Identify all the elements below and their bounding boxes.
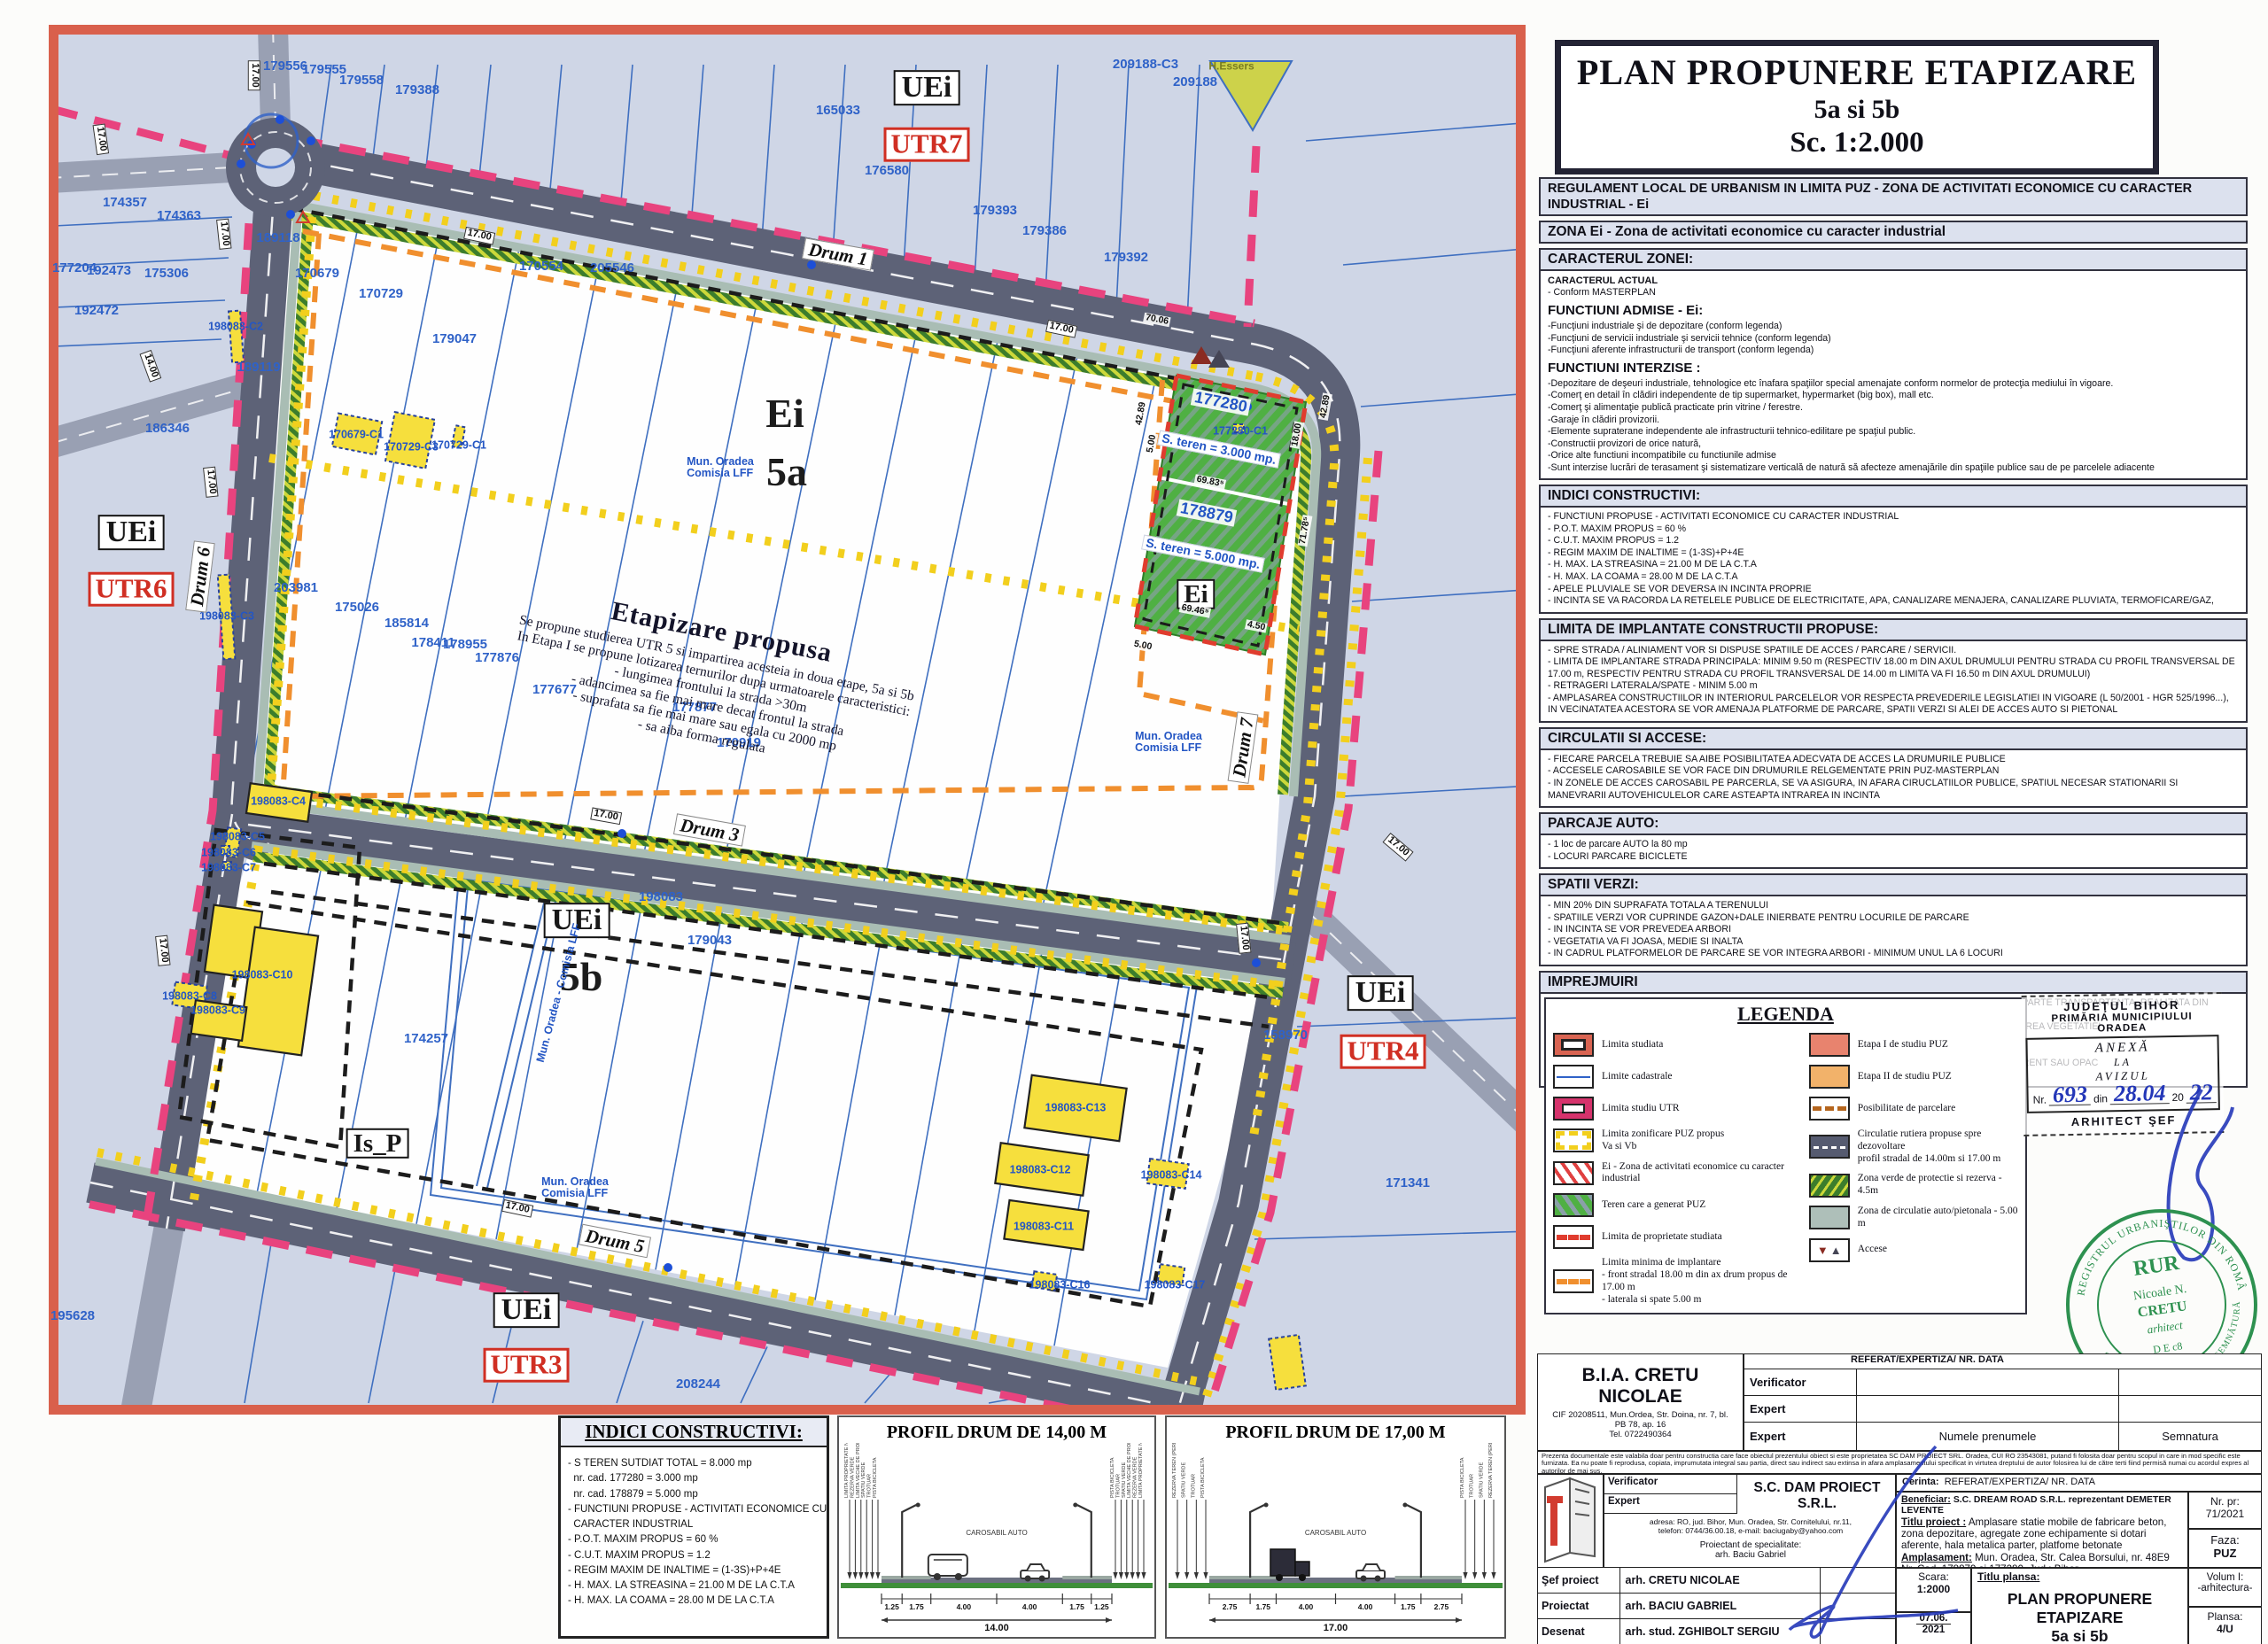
svg-text:4.00: 4.00 (1358, 1602, 1373, 1611)
profile-17m-drawing: CAROSABIL AUTOREZERVA TEREN (PERDEA VERD… (1167, 1443, 1504, 1636)
verif-cell: Expert (1744, 1422, 1857, 1452)
dam-expert-row: Expert (1604, 1494, 1737, 1514)
staff-cell: Desenat (1537, 1618, 1620, 1644)
section-header: REGULAMENT LOCAL DE URBANISM IN LIMITA P… (1539, 177, 2248, 216)
map-label-dim: 17.00 (156, 935, 171, 966)
svg-text:SPATIU VERDE: SPATIU VERDE (1122, 1462, 1127, 1498)
verif-cell: Numele prenumele (1856, 1422, 2120, 1452)
plan-title-scale: Sc. 1:2.000 (1561, 127, 2153, 159)
annex-din-label: din (2093, 1092, 2108, 1105)
legend-item: Posibilitate de parcelare (1809, 1097, 2018, 1121)
map-label-p: 174257 (404, 1032, 448, 1046)
staff-cell: Proiectat (1537, 1593, 1620, 1620)
svg-text:CAROSABIL AUTO: CAROSABIL AUTO (1305, 1529, 1366, 1537)
section-line: -Comerţ şi alimentaţie publică practicat… (1548, 402, 2239, 415)
section-line: - IN INCINTA SE VOR PREVEDEA ARBORI (1548, 924, 2239, 936)
svg-text:14.00: 14.00 (984, 1623, 1009, 1633)
legend-item: Limita minima de implantare - front stra… (1553, 1257, 1809, 1306)
section-line: - P.O.T. MAXIM PROPUS = 60 % (1548, 523, 2239, 536)
legend-title: LEGENDA (1553, 1003, 2018, 1026)
annex-year-prefix: 20 (2171, 1091, 2184, 1104)
svg-text:4.00: 4.00 (1299, 1602, 1314, 1611)
map-label-dims: 42.89 (1134, 399, 1148, 428)
map-label-p: 165033 (816, 104, 860, 118)
profile-17m-box: PROFIL DRUM DE 17,00 M CAROSABIL AUTOREZ… (1165, 1415, 1506, 1639)
section-line: - RETRAGERI LATERALA/SPATE - MINIM 5.00 … (1548, 680, 2239, 693)
section-6: PARCAJE AUTO:- 1 loc de parcare AUTO la … (1539, 812, 2248, 869)
svg-text:1.75: 1.75 (909, 1602, 924, 1611)
section-body: - MIN 20% DIN SUPRAFATA TOTALA A TERENUL… (1539, 896, 2248, 966)
legend-label: Circulatie rutiera propuse spre dezovolt… (1858, 1128, 2018, 1165)
legend-item: Circulatie rutiera propuse spre dezovolt… (1809, 1128, 2018, 1165)
svg-text:TROTUAR: TROTUAR (1191, 1474, 1196, 1498)
sw-parc-swatch (1809, 1097, 1850, 1121)
map-label-b: 198083-C10 (232, 969, 293, 981)
verif-cell: Semnatura (2118, 1422, 2262, 1452)
section-5: CIRCULATII SI ACCESE:- FIECARE PARCELA T… (1539, 727, 2248, 808)
section-line: FUNCTIUNI ADMISE - Ei: (1548, 302, 2239, 319)
map-label-dims: 69.83⁵ (1194, 474, 1227, 490)
svg-text:TROTUAR: TROTUAR (1115, 1474, 1121, 1498)
map-label-p: 179392 (1104, 251, 1148, 265)
svg-text:REZERVA TEREN (PERDEA VERDE): REZERVA TEREN (PERDEA VERDE) (1488, 1443, 1494, 1498)
sw-etapa1-swatch (1809, 1033, 1850, 1057)
legend-label: Zona verde de protectie si rezerva - 4.5… (1858, 1173, 2018, 1198)
section-3: INDICI CONSTRUCTIVI:- FUNCTIUNI PROPUSE … (1539, 485, 2248, 613)
section-line: -Garaje în clădiri provizorii. (1548, 415, 2239, 427)
legend-label: Limite cadastrale (1602, 1071, 1673, 1083)
annex-city: PRIMĂRIA MUNICIPIULUI ORADEA (2025, 1011, 2218, 1035)
map-label-dim: 17.00 (217, 219, 232, 250)
section-body: - FUNCTIUNI PROPUSE - ACTIVITATI ECONOMI… (1539, 508, 2248, 613)
verif-row: Expert (1744, 1396, 2262, 1423)
verif-cell (1856, 1395, 2120, 1423)
map-label-dim: 17.00 (1045, 320, 1077, 337)
staff-cell: arh. CRETU NICOLAE (1619, 1567, 1821, 1594)
map-label-b: 198083-C7 (201, 862, 256, 873)
regulation-sections: REGULAMENT LOCAL DE URBANISM IN LIMITA P… (1539, 177, 2248, 1092)
section-body: - SPRE STRADA / ALINIAMENT VOR SI DISPUS… (1539, 641, 2248, 723)
indici-box-lines: - S TEREN SUTDIAT TOTAL = 8.000 mp nr. c… (561, 1447, 827, 1618)
section-header: CARACTERUL ZONEI: (1539, 248, 2248, 271)
map-label-zone: UEi (1348, 975, 1414, 1011)
map-label-p: 179386 (1022, 224, 1067, 238)
svg-text:TROTUAR: TROTUAR (867, 1474, 873, 1498)
svg-text:1.75: 1.75 (1255, 1602, 1270, 1611)
legend-item: Etapa II de studiu PUZ (1809, 1065, 2018, 1089)
legend-label: Posibilitate de parcelare (1858, 1103, 1955, 1115)
legend-label: Limita studiu UTR (1602, 1103, 1680, 1115)
map-label-p: 192472 (74, 304, 119, 318)
legend-item: Limita studiu UTR (1553, 1097, 1809, 1121)
map-label-p: 170729 (359, 287, 403, 301)
legend-item: Etapa I de studiu PUZ (1809, 1033, 2018, 1057)
map-label-p: 209188 (1173, 75, 1217, 89)
staff-row: Şef proiectarh. CRETU NICOLAE (1537, 1568, 1896, 1594)
section-header: LIMITA DE IMPLANTATE CONSTRUCTII PROPUSE… (1539, 618, 2248, 641)
staff-cell: Şef proiect (1537, 1567, 1620, 1594)
svg-text:17.00: 17.00 (1324, 1623, 1348, 1633)
section-line: - H. MAX. LA STREASINA = 21.00 M DE LA C… (1548, 559, 2239, 571)
map-label-b: 198083-C9 (190, 1004, 245, 1016)
map-label-dims: 5.00 (1145, 432, 1158, 455)
svg-text:REZERVA VERDE: REZERVA VERDE (1133, 1456, 1138, 1498)
svg-text:CAROSABIL AUTO: CAROSABIL AUTO (966, 1529, 1027, 1537)
svg-text:1.25: 1.25 (1094, 1602, 1109, 1611)
section-line: - ACCESELE CAROSABILE SE VOR FACE DIN DR… (1548, 765, 2239, 778)
section-line: -Depozitare de deşeuri industriale, tehn… (1548, 378, 2239, 391)
legend-item: Limita zonificare PUZ propus Va si Vb (1553, 1128, 1809, 1153)
plan-sheet: { "plan_title":{"t1":"PLAN PROPUNERE ETA… (0, 0, 2268, 1644)
map-label-b: 198083-C11 (1014, 1221, 1074, 1232)
scara-cell: Scara:1:2000 (1896, 1568, 1971, 1612)
verif-cell (1856, 1369, 2120, 1397)
map-label-p: 179556 (263, 59, 307, 74)
staff-cell: arh. BACIU GABRIEL (1619, 1593, 1821, 1620)
date-cell: 07.06. 2021 (1896, 1612, 1971, 1644)
map-label-b: 198083-C17 (1145, 1279, 1206, 1291)
map-label-p: 176580 (865, 164, 909, 178)
map-label-b: 170729-C3 (384, 441, 439, 453)
profile-14m-box: PROFIL DRUM DE 14,00 M CAROSABIL AUTOLIM… (837, 1415, 1156, 1639)
svg-text:REZERVA TEREN (PERDEA VERDE): REZERVA TEREN (PERDEA VERDE) (1172, 1443, 1177, 1498)
svg-text:SPATIU VERDE: SPATIU VERDE (1182, 1462, 1187, 1498)
legend-label: Zona de circulatie auto/pietonala - 5.00… (1858, 1206, 2018, 1230)
map-label-dim: 17.00 (501, 1199, 533, 1217)
legend-label: Ei - Zona de activitati economice cu car… (1602, 1161, 1809, 1186)
svg-text:SPATIU VERDE: SPATIU VERDE (861, 1462, 866, 1498)
indici-constructivi-box: INDICI CONSTRUCTIVI: - S TEREN SUTDIAT T… (558, 1415, 829, 1639)
dam-proiectant: Proiectant de specialitate:arh. Baciu Ga… (1613, 1540, 1888, 1560)
map-label-pb: 177280 (1191, 388, 1251, 415)
section-header: ZONA Ei - Zona de activitati economice c… (1539, 221, 2248, 244)
map-label-dims: 5.00 (1131, 639, 1154, 652)
section-line: - VEGETATIA VA FI JOASA, MEDIE SI INALTA (1548, 936, 2239, 949)
annex-stamp: JUDEŢUL BIHOR PRIMĂRIA MUNICIPIULUI ORAD… (2022, 992, 2225, 1136)
annex-footer: ARHITECT ŞEF (2027, 1113, 2220, 1129)
sw-puz-swatch (1553, 1128, 1594, 1152)
section-header: PARCAJE AUTO: (1539, 812, 2248, 835)
faza-cell: Faza:PUZ (2188, 1529, 2262, 1568)
svg-text:PISTA BICICLETA: PISTA BICICLETA (1110, 1457, 1115, 1498)
section-header: IMPREJMUIRI (1539, 971, 2248, 994)
map-label-p: 186346 (145, 422, 190, 436)
sw-ei-swatch (1553, 1161, 1594, 1185)
map-label-olive: H.Essers (1208, 61, 1254, 73)
map-label-st: S. teren = 5.000 mp. (1141, 535, 1265, 573)
section-body: CARACTERUL ACTUAL - Conform MASTERPLANFU… (1539, 271, 2248, 480)
section-line: - C.U.T. MAXIM PROPUS = 1.2 (1548, 535, 2239, 547)
map-label-dims: 18.00 (1290, 421, 1304, 449)
nr-pr-cell: Nr. pr:71/2021 (2188, 1492, 2262, 1529)
map-label-big: Ei (765, 392, 804, 435)
sw-utr-swatch (1553, 1097, 1594, 1121)
annex-inner-box: ANEXĂ LA AVIZUL Nr. 693 din 28.04 20 22 (2025, 1035, 2219, 1113)
section-line: -Orice alte functiuni incompatibile cu f… (1548, 450, 2239, 462)
volum-cell: Volum I:-arhitectura- (2188, 1568, 2262, 1607)
section-header: INDICI CONSTRUCTIVI: (1539, 485, 2248, 508)
map-label-b: 198083-C3 (199, 610, 254, 622)
section-body: - FIECARE PARCELA TREBUIE SA AIBE POSIBI… (1539, 750, 2248, 808)
staff-row: Desenatarh. stud. ZGHIBOLT SERGIU (1537, 1619, 1896, 1644)
project-cell: Beneficiar: S.C. DREAM ROAD S.R.L. repre… (1896, 1492, 2188, 1568)
legend-label: Limita de proprietate studiata (1602, 1231, 1722, 1244)
legend-label: Etapa II de studiu PUZ (1858, 1071, 1952, 1083)
svg-text:SPATIU VERDE: SPATIU VERDE (1479, 1462, 1484, 1498)
bia-addr1: CIF 20208511, Mun.Ordea, Str. Doina, nr.… (1538, 1410, 1743, 1420)
verif-cell: Verificator (1744, 1369, 1857, 1397)
section-line: - REGIM MAXIM DE INALTIME = (1-3S)+P+4E (1548, 547, 2239, 560)
staff-rows: Şef proiectarh. CRETU NICOLAEProiectatar… (1537, 1568, 1896, 1644)
section-line: - 1 loc de parcare AUTO la 80 mp (1548, 839, 2239, 851)
svg-text:REZERVA VERDE: REZERVA VERDE (850, 1456, 855, 1498)
section-line: -Comerţ en detail în clădiri independent… (1548, 390, 2239, 402)
svg-text:PISTA BICICLETA: PISTA BICICLETA (1200, 1457, 1206, 1498)
legend-label: Limita minima de implantare - front stra… (1602, 1257, 1809, 1306)
legend-item: Limita de proprietate studiata (1553, 1225, 1809, 1249)
map-label-p: 192473 (87, 264, 131, 278)
map-label-b: 198083-C5 (210, 831, 265, 842)
sw-cadastrale-swatch (1553, 1065, 1594, 1089)
map-label-b: 198083-C4 (251, 795, 306, 807)
section-line: - INCINTA SE VA RACORDA LA RETELELE PUBL… (1548, 595, 2239, 608)
annex-date-value: 28.04 (2110, 1084, 2170, 1105)
legend-label: Accese (1858, 1244, 1887, 1256)
map-label-p: 170679 (295, 267, 339, 281)
legend-column-right: Etapa I de studiu PUZEtapa II de studiu … (1809, 1033, 2018, 1306)
section-line: -Funcţiuni de servicii industriale şi se… (1548, 333, 2239, 345)
svg-text:2.75: 2.75 (1223, 1602, 1238, 1611)
map-label-drum: Drum 5 (579, 1224, 651, 1259)
section-line: - LIMITA DE IMPLANTARE STRADA PRINCIPALA… (1548, 656, 2239, 680)
staff-cell (1820, 1567, 1896, 1594)
plan-title-line1: PLAN PROPUNERE ETAPIZARE (1561, 51, 2153, 93)
map-label-dim: 17.00 (248, 60, 260, 90)
copyright-disclaimer: Prezenta documentale este valabila doar … (1537, 1451, 2262, 1474)
map-label-p: 179043 (687, 934, 732, 948)
map-label-dim: 17.00 (590, 807, 621, 824)
map-label-p: 175026 (335, 601, 379, 615)
map-label-dim: 17.00 (1237, 923, 1252, 954)
legend-label: Limita studiata (1602, 1039, 1663, 1051)
profile-14m-title: PROFIL DRUM DE 14,00 M (839, 1417, 1154, 1443)
regulations-panel: PLAN PROPUNERE ETAPIZARE 5a si 5b Sc. 1:… (1537, 0, 2268, 1644)
map-label-dims: 71.78⁵ (1298, 515, 1313, 547)
map-label-p: 171341 (1386, 1176, 1430, 1190)
titlu-plansa-cell: Titlu plansa: PLAN PROPUNERE ETAPIZARE 5… (1971, 1568, 2188, 1644)
map-label-dim: 17.00 (463, 227, 495, 244)
annex-nr-label: Nr. (2033, 1093, 2047, 1105)
bia-phone: Tel. 0722490364 (1538, 1430, 1743, 1439)
section-line: - LOCURI PARCARE BICICLETE (1548, 851, 2239, 864)
plan-title-box: PLAN PROPUNERE ETAPIZARE 5a si 5b Sc. 1:… (1555, 40, 2159, 174)
bia-addr2: PB 78, ap. 16 (1538, 1420, 1743, 1430)
map-label-dim: 17.00 (204, 467, 219, 498)
map-label-zone: UEi (98, 515, 165, 550)
map-label-utr: UTR3 (484, 1348, 570, 1383)
sw-impl-swatch (1553, 1269, 1594, 1293)
map-label-big: 5a (766, 451, 807, 493)
svg-text:1.25: 1.25 (884, 1602, 899, 1611)
map-label-p: 208244 (676, 1377, 720, 1392)
map-label-note: Mun. Oradea Comisia LFF (541, 1176, 609, 1199)
dam-logo-cell (1537, 1474, 1604, 1568)
section-line: - APELE PLUVIALE SE VOR DEVERSA IN INCIN… (1548, 584, 2239, 596)
map-label-b: 177280-C1 (1213, 425, 1268, 437)
bia-name: B.I.A. CRETU NICOLAE (1538, 1365, 1743, 1407)
map-label-p: 170554 (519, 260, 563, 274)
map-label-p: 195628 (50, 1309, 95, 1323)
sw-zc-swatch (1809, 1206, 1850, 1229)
dam-address: adresa: RO, jud. Bihor, Mun. Oradea, Str… (1613, 1517, 1888, 1535)
legend-label: Etapa I de studiu PUZ (1858, 1039, 1948, 1051)
sw-zv-swatch (1809, 1174, 1850, 1198)
section-line: - Conform MASTERPLAN (1548, 287, 2239, 299)
legend-item: Zona verde de protectie si rezerva - 4.5… (1809, 1173, 2018, 1198)
verif-row: ExpertNumele prenumeleSemnatura (1744, 1423, 2262, 1451)
cerinta-row: Cerinta: REFERAT/EXPERTIZA/ NR. DATA (1896, 1474, 2262, 1492)
sw-acc-swatch (1809, 1238, 1850, 1262)
svg-text:2.75: 2.75 (1434, 1602, 1449, 1611)
map-label-b: 198083-C8 (162, 990, 217, 1002)
bia-block: B.I.A. CRETU NICOLAE CIF 20208511, Mun.O… (1537, 1353, 1744, 1451)
legend-item: Zona de circulatie auto/pietonala - 5.00… (1809, 1206, 2018, 1230)
map-label-p: 189119 (237, 361, 280, 375)
staff-cell: arh. stud. ZGHIBOLT SERGIU (1619, 1618, 1821, 1644)
map-label-b: 198083-C14 (1141, 1169, 1202, 1181)
plansa-cell: Plansa:4/U (2188, 1607, 2262, 1644)
sw-circ-swatch (1809, 1135, 1850, 1159)
section-line: -Constructii provizori de orice natură, (1548, 438, 2239, 451)
legend-label: Limita zonificare PUZ propus Va si Vb (1602, 1128, 1724, 1153)
legend-column-left: Limita studiataLimite cadastraleLimita s… (1553, 1033, 1809, 1306)
dam-verificator-row: Verificator (1604, 1475, 1737, 1494)
verif-cell (2118, 1369, 2262, 1397)
verif-row: Verificator (1744, 1369, 2262, 1396)
section-line: - FIECARE PARCELA TREBUIE SA AIBE POSIBI… (1548, 754, 2239, 766)
map-label-b: 198083-C13 (1045, 1102, 1107, 1113)
section-1: ZONA Ei - Zona de activitati economice c… (1539, 221, 2248, 244)
section-line: - IN CADRUL PLATFORMELOR DE PARCARE SE V… (1548, 948, 2239, 960)
sw-prop-swatch (1553, 1225, 1594, 1249)
legend-item: Accese (1809, 1238, 2018, 1262)
map-label-p: 175306 (144, 267, 189, 281)
legend-item: Limita studiata (1553, 1033, 1809, 1057)
map-label-b: 198083-C6 (201, 847, 256, 858)
svg-text:1.75: 1.75 (1069, 1602, 1084, 1611)
map-label-p: 158970 (1263, 1028, 1308, 1043)
map-label-dim: 17.00 (93, 123, 109, 154)
sw-teren-swatch (1553, 1193, 1594, 1217)
section-line: - FUNCTIUNI PROPUSE - ACTIVITATI ECONOMI… (1548, 511, 2239, 523)
map-label-drum: Drum 7 (1228, 711, 1259, 784)
section-line: - SPATIILE VERZI VOR CUPRINDE GAZON+DALE… (1548, 912, 2239, 925)
map-label-p: 198083 (639, 890, 683, 904)
map-label-p: 179558 (339, 74, 384, 88)
svg-text:LIMITA PROPRIETATE NOU PROPUSA: LIMITA PROPRIETATE NOU PROPUSA - IMPREJM… (1138, 1443, 1144, 1498)
map-label-dims: 70.06 (1143, 313, 1171, 328)
staff-cell (1820, 1618, 1896, 1644)
section-line: -Funcţiuni aferente infrastructurii de t… (1548, 345, 2239, 357)
map-label-p: 209188-C3 (1113, 58, 1178, 72)
map-label-dim: 17.00 (1383, 833, 1413, 861)
map-label-b: 198083-C12 (1010, 1164, 1071, 1175)
map-label-utr: UTR6 (89, 572, 175, 607)
section-line: -Sunt interzise lucrări de terasament şi… (1548, 462, 2239, 475)
indici-box-title: INDICI CONSTRUCTIVI: (561, 1418, 827, 1447)
map-label-b: 170679-C1 (329, 429, 384, 440)
map-label-b: 198083-C16 (1029, 1279, 1091, 1291)
svg-text:RUR: RUR (2132, 1252, 2181, 1281)
map-label-drum: Drum 3 (673, 813, 746, 846)
map-label-b: 170729-C1 (431, 439, 486, 451)
verif-cell (2118, 1395, 2262, 1423)
map-label-note: Mun. Oradea Comisia LFF (1135, 731, 1202, 754)
map-label-p: 174363 (157, 209, 201, 223)
dam-cell: Verificator Expert S.C. DAM PROIECT S.R.… (1604, 1474, 1896, 1568)
legend-item: Teren care a generat PUZ (1553, 1193, 1809, 1217)
section-line: -Funcţiuni industriale şi de depozitare … (1548, 321, 2239, 333)
section-line: - SPRE STRADA / ALINIAMENT VOR SI DISPUS… (1548, 645, 2239, 657)
map-label-p: 185814 (384, 616, 429, 631)
map-label-dim: 14.00 (140, 350, 161, 382)
section-line: - IN ZONELE DE ACCES CAROSABIL PE PARCER… (1548, 778, 2239, 802)
map-label-dims: 4.50 (1245, 619, 1268, 632)
plan-title-line2: 5a si 5b (1561, 95, 2153, 125)
map-label-zone: UEi (493, 1292, 560, 1328)
section-header: SPATII VERZI: (1539, 873, 2248, 896)
map-label-p: 189118 (256, 231, 299, 245)
staff-cell (1820, 1593, 1896, 1620)
annex-year-value: 22 (2186, 1083, 2217, 1103)
legend-label: Teren care a generat PUZ (1602, 1199, 1705, 1212)
section-body: - 1 loc de parcare AUTO la 80 mp- LOCURI… (1539, 835, 2248, 869)
map-label-p: 179393 (973, 204, 1017, 218)
sw-etapa2-swatch (1809, 1065, 1850, 1089)
svg-text:PISTA BICICLETA: PISTA BICICLETA (873, 1457, 878, 1498)
map-label-p: 203981 (274, 581, 318, 595)
map-label-p: 205546 (590, 261, 634, 275)
map-label-p: 179047 (432, 332, 477, 346)
profile-17m-title: PROFIL DRUM DE 17,00 M (1167, 1417, 1504, 1443)
svg-text:PISTA BICICLETA: PISTA BICICLETA (1460, 1457, 1465, 1498)
map-label-pb: 178879 (1177, 499, 1237, 526)
section-header: CIRCULATII SI ACCESE: (1539, 727, 2248, 750)
section-7: SPATII VERZI:- MIN 20% DIN SUPRAFATA TOT… (1539, 873, 2248, 966)
svg-text:LIMITA VECHE DE PROPRIETATE: LIMITA VECHE DE PROPRIETATE (856, 1443, 861, 1498)
svg-text:arhitect: arhitect (2147, 1318, 2184, 1337)
svg-text:TROTUAR: TROTUAR (1470, 1474, 1475, 1498)
legend-box: LEGENDA Limita studiataLimite cadastrale… (1544, 997, 2027, 1314)
map-label-drum: Drum 6 (185, 540, 215, 612)
legend-item: Limite cadastrale (1553, 1065, 1809, 1089)
legend-item: Ei - Zona de activitati economice cu car… (1553, 1161, 1809, 1186)
map-label-zone: UEi (894, 70, 960, 105)
section-2: CARACTERUL ZONEI:CARACTERUL ACTUAL - Con… (1539, 248, 2248, 480)
dam-company: S.C. DAM PROIECT S.R.L. (1737, 1480, 1897, 1512)
map-label-drum: Drum 1 (802, 237, 874, 270)
verif-cell: Expert (1744, 1395, 1857, 1423)
annex-nr-value: 693 (2049, 1086, 2091, 1106)
section-0: REGULAMENT LOCAL DE URBANISM IN LIMITA P… (1539, 177, 2248, 216)
section-line: CARACTERUL ACTUAL (1548, 275, 2239, 287)
svg-text:4.00: 4.00 (1022, 1602, 1037, 1611)
section-line: - H. MAX. LA COAMA = 28.00 M DE LA C.T.A (1548, 571, 2239, 584)
map-label-utr: UTR7 (884, 128, 970, 162)
section-4: LIMITA DE IMPLANTATE CONSTRUCTII PROPUSE… (1539, 618, 2248, 723)
section-line: - MIN 20% DIN SUPRAFATA TOTALA A TERENUL… (1548, 900, 2239, 912)
section-line: - AMPLASAREA CONSTRUCTIILOR IN INTERIORU… (1548, 693, 2239, 717)
